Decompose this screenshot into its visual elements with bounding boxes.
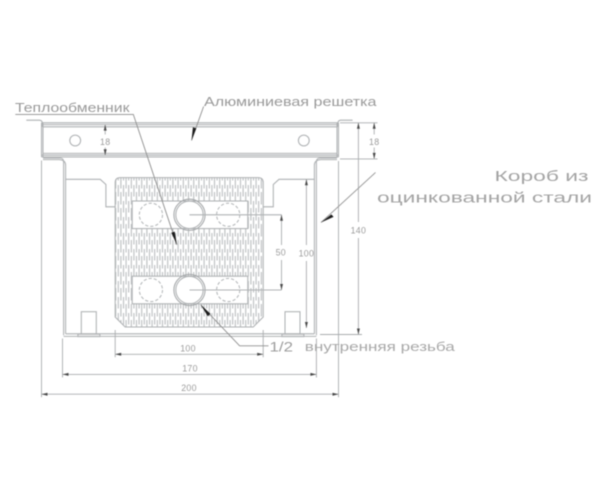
svg-text:оцинкованной стали: оцинкованной стали bbox=[377, 189, 592, 206]
svg-text:Теплообменник: Теплообменник bbox=[15, 100, 130, 115]
svg-text:140: 140 bbox=[351, 226, 367, 236]
svg-text:1/2: 1/2 bbox=[270, 338, 294, 354]
svg-text:Короб из: Короб из bbox=[495, 168, 589, 185]
svg-text:100: 100 bbox=[180, 343, 196, 353]
svg-text:18: 18 bbox=[369, 137, 379, 147]
svg-text:200: 200 bbox=[181, 383, 197, 393]
svg-text:внутренняя резьба: внутренняя резьба bbox=[305, 340, 455, 354]
svg-text:100: 100 bbox=[299, 249, 315, 259]
svg-text:50: 50 bbox=[276, 248, 286, 258]
svg-text:18: 18 bbox=[100, 137, 110, 147]
svg-text:170: 170 bbox=[182, 363, 198, 373]
svg-text:Алюминиевая решетка: Алюминиевая решетка bbox=[204, 94, 377, 109]
